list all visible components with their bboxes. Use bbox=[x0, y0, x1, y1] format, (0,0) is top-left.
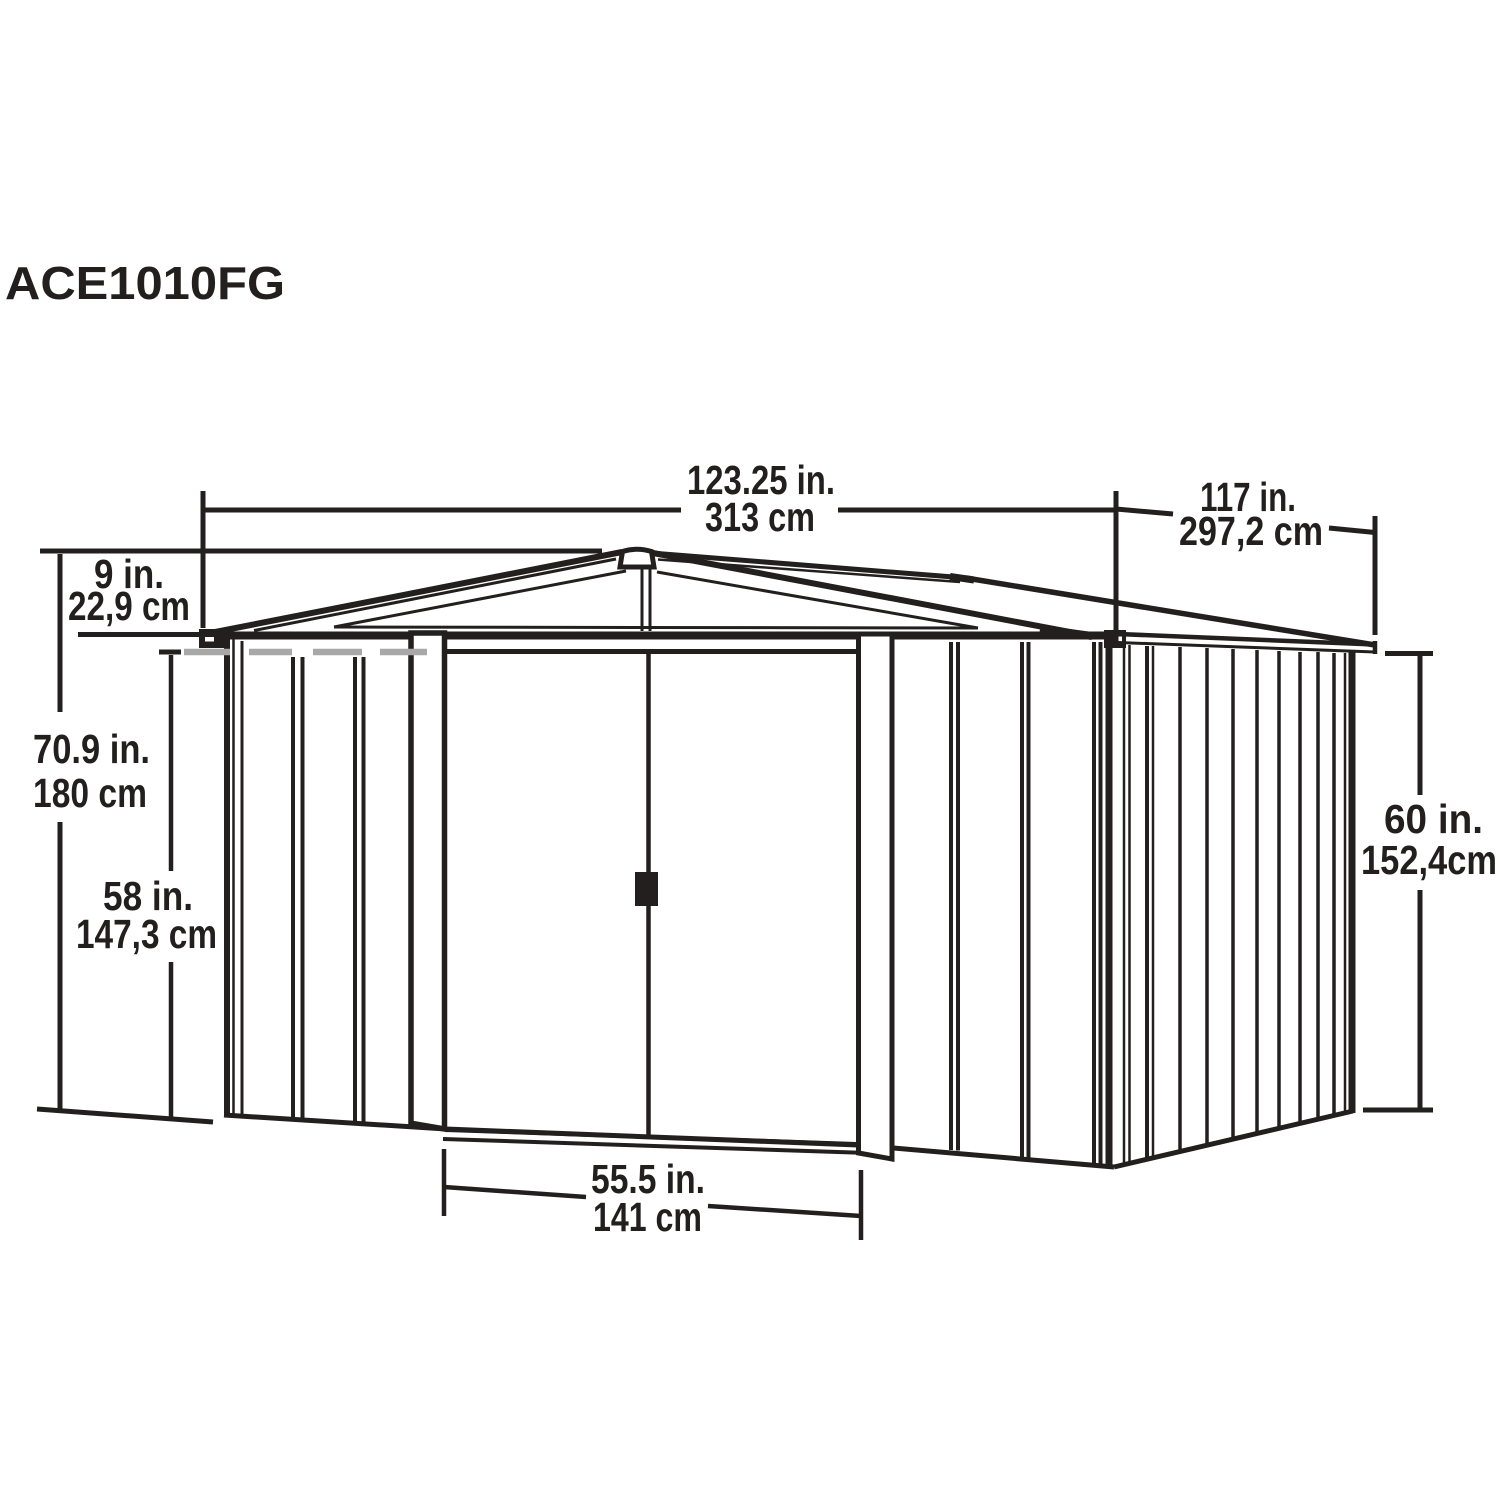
svg-text:141 cm: 141 cm bbox=[593, 1194, 702, 1240]
svg-text:147,3 cm: 147,3 cm bbox=[76, 911, 217, 957]
svg-text:180 cm: 180 cm bbox=[33, 770, 147, 816]
svg-text:70.9 in.: 70.9 in. bbox=[33, 726, 150, 772]
svg-text:60 in.: 60 in. bbox=[1384, 796, 1483, 842]
svg-text:22,9 cm: 22,9 cm bbox=[68, 583, 190, 629]
svg-text:152,4cm: 152,4cm bbox=[1361, 837, 1497, 883]
svg-text:ACE1010FG: ACE1010FG bbox=[5, 257, 285, 309]
svg-text:313 cm: 313 cm bbox=[705, 494, 815, 540]
svg-text:297,2 cm: 297,2 cm bbox=[1179, 508, 1323, 554]
